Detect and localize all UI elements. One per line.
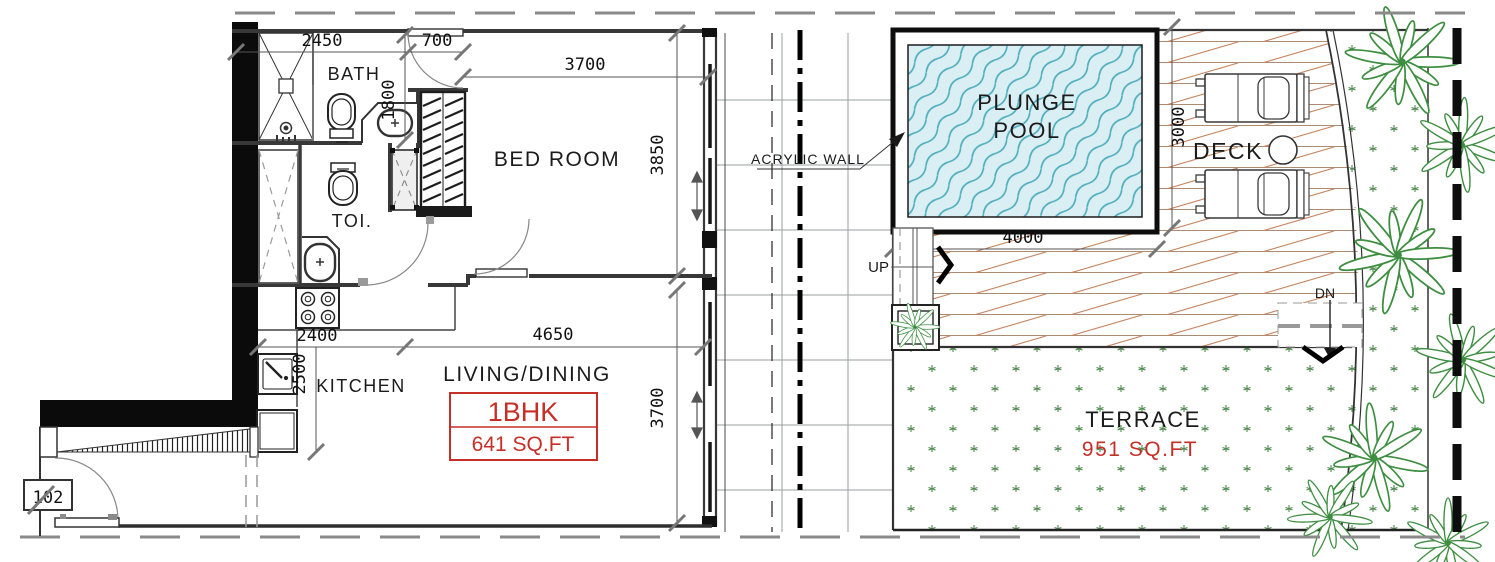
wall-stub bbox=[702, 277, 717, 290]
pool-label-line2: POOL bbox=[993, 118, 1060, 143]
unit-type: 1BHK bbox=[488, 397, 559, 427]
kitchen-label: KITCHEN bbox=[316, 376, 406, 396]
unit-area: 641 SQ.FT bbox=[472, 433, 575, 456]
terrace-area-label: 951 SQ.FT bbox=[1082, 438, 1198, 461]
duct-shaft bbox=[390, 148, 419, 210]
dim-bath-depth: 1800 bbox=[379, 80, 399, 121]
dim-entry-door: 700 bbox=[422, 31, 453, 51]
unit-type-box: 1BHK 641 SQ.FT bbox=[450, 393, 597, 460]
toilet-label: TOI. bbox=[332, 211, 373, 231]
up-label: UP bbox=[868, 259, 889, 276]
floor-plan-page: PLUNGE POOL ACRYLIC WALL 4000 3000 UP DN… bbox=[0, 0, 1495, 562]
dim-kitchen-depth: 2500 bbox=[290, 354, 310, 395]
dim-text-4000: 4000 bbox=[1003, 228, 1044, 248]
deck-table bbox=[1269, 136, 1297, 164]
dim-bedroom-depth: 3850 bbox=[648, 135, 668, 176]
bath-toilet-fixture bbox=[328, 94, 355, 142]
kitchen-cabinet bbox=[257, 410, 297, 452]
toilet-fixture bbox=[329, 163, 357, 205]
unit-number-tag: 102 bbox=[24, 480, 72, 514]
deck-planter bbox=[890, 302, 940, 350]
dn-label: DN bbox=[1315, 285, 1335, 301]
stove bbox=[296, 288, 339, 328]
entry-post-right bbox=[250, 427, 258, 457]
dim-living-depth: 3700 bbox=[648, 388, 668, 429]
living-label: LIVING/DINING bbox=[443, 363, 611, 386]
plunge-pool: PLUNGE POOL bbox=[893, 30, 1157, 232]
bedroom-label: BED ROOM bbox=[494, 148, 620, 171]
wall-entry-black bbox=[40, 400, 258, 427]
deck-label: DECK bbox=[1193, 138, 1263, 164]
dim-text-3000: 3000 bbox=[1169, 107, 1189, 148]
wall-stub bbox=[702, 231, 717, 248]
lounge-chair-2 bbox=[1196, 170, 1309, 218]
wall-left-black bbox=[232, 22, 258, 425]
terrace-label: TERRACE bbox=[1085, 407, 1201, 432]
dim-living-width: 4650 bbox=[533, 325, 574, 345]
wardrobe-bottom-wall bbox=[416, 206, 472, 217]
entry-post-left bbox=[40, 427, 57, 457]
acrylic-wall-label: ACRYLIC WALL bbox=[751, 151, 865, 167]
dim-bath-width: 2450 bbox=[302, 31, 343, 51]
dim-bedroom-width: 3700 bbox=[565, 55, 606, 75]
bath-label: BATH bbox=[328, 64, 381, 84]
pool-label-line1: PLUNGE bbox=[977, 90, 1076, 115]
wall-stub bbox=[702, 28, 717, 37]
floor-plan-drawing: PLUNGE POOL ACRYLIC WALL 4000 3000 UP DN… bbox=[0, 0, 1495, 562]
dim-kitchen-width: 2400 bbox=[297, 326, 338, 346]
lounge-chair-1 bbox=[1196, 74, 1309, 122]
